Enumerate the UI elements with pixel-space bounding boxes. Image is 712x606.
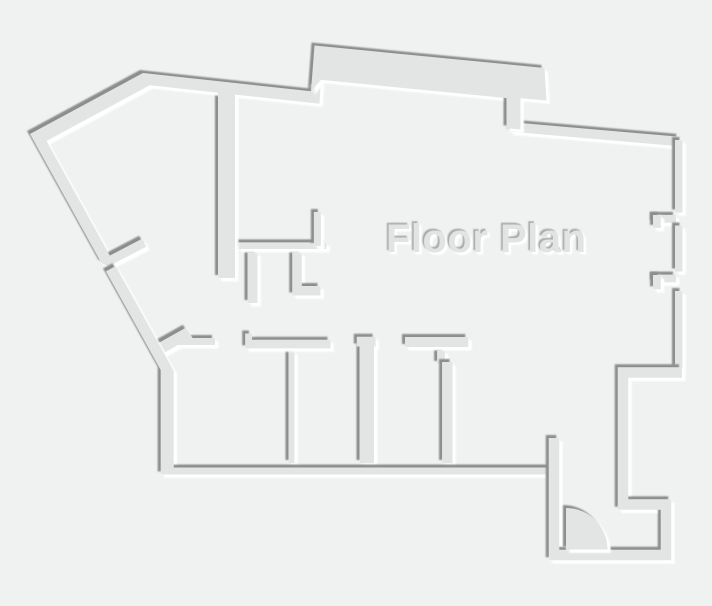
svg-text:Floor Plan: Floor Plan <box>386 217 587 261</box>
